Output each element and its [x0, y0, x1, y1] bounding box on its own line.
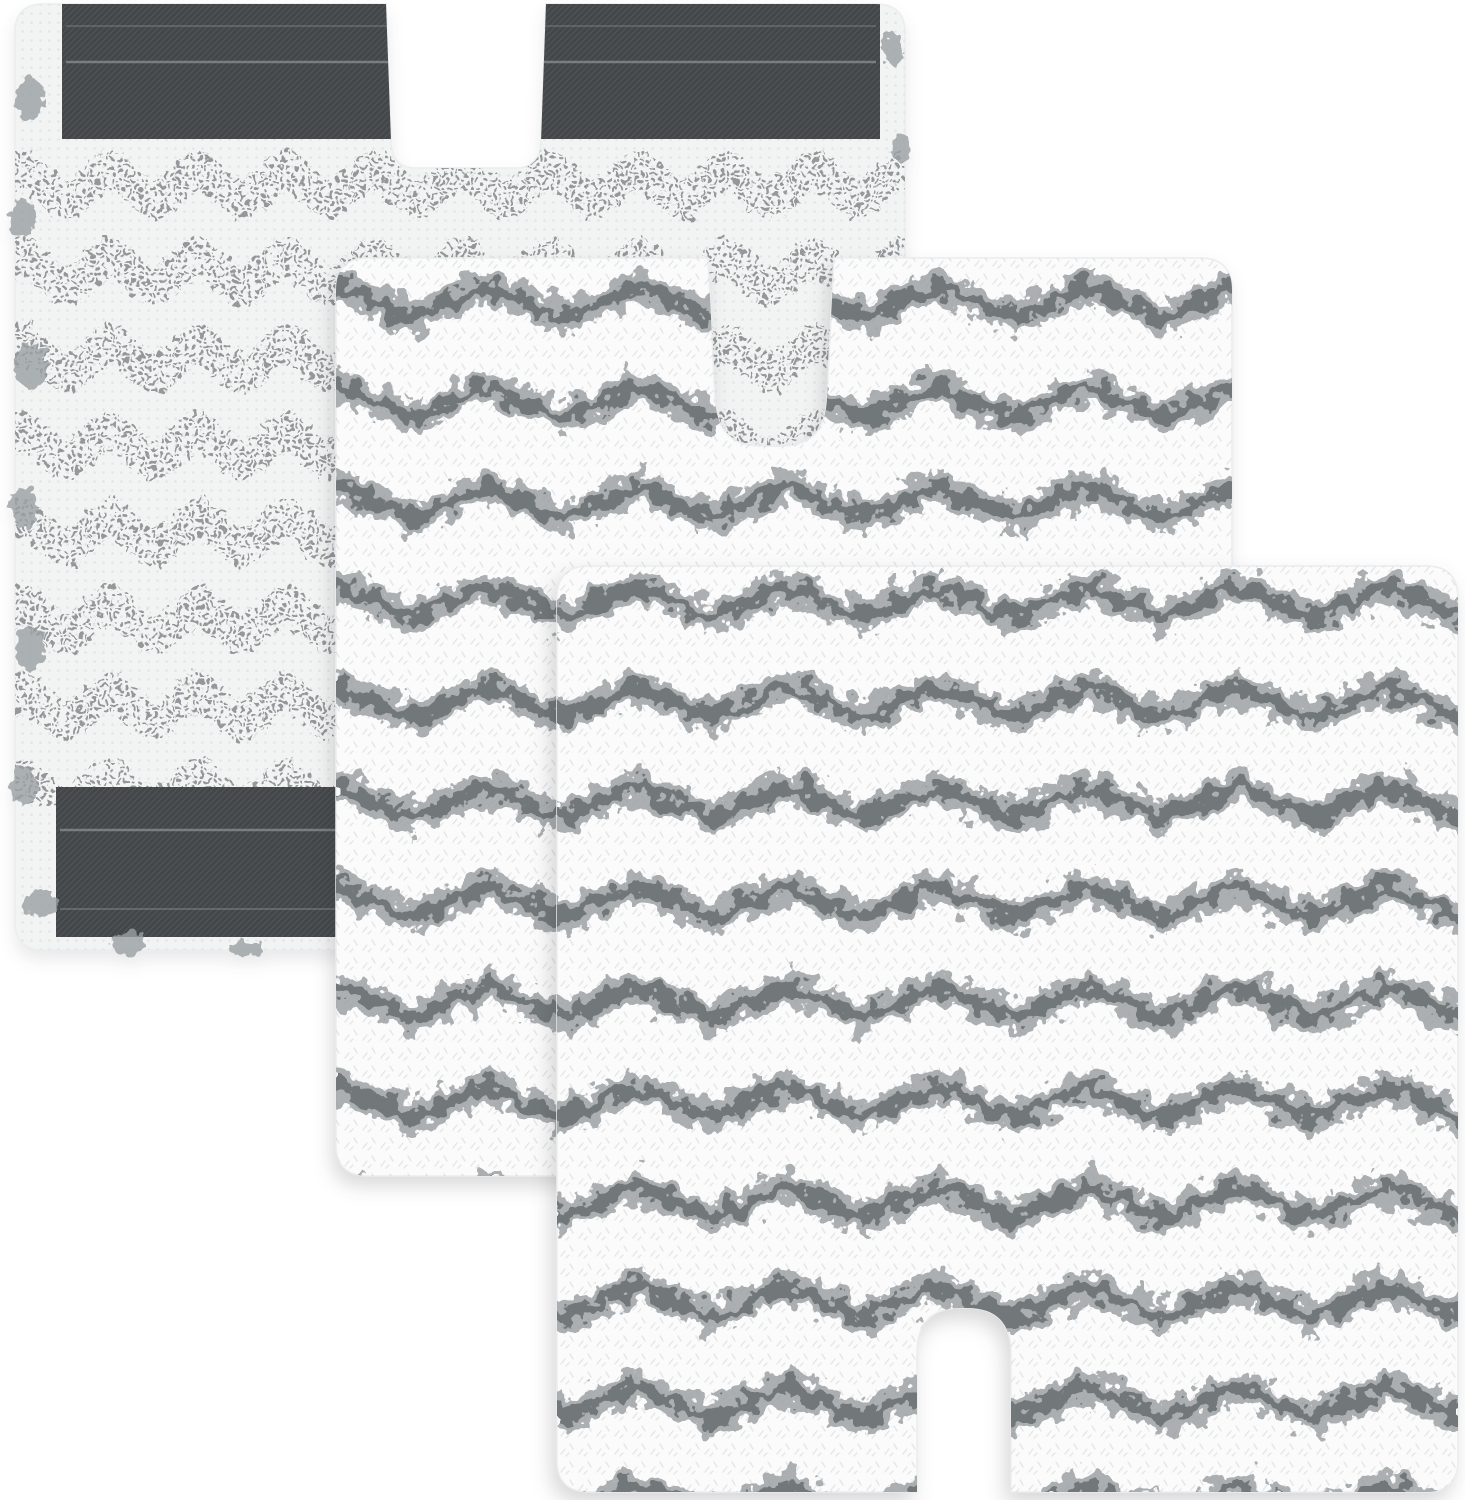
velcro-strip-top — [62, 2, 880, 139]
front-pad — [550, 560, 1465, 1500]
velcro-strip-bottom — [56, 787, 346, 937]
chevron-stripes — [550, 560, 1465, 1500]
product-photo — [0, 0, 1465, 1500]
product-photo-stage — [0, 0, 1465, 1500]
